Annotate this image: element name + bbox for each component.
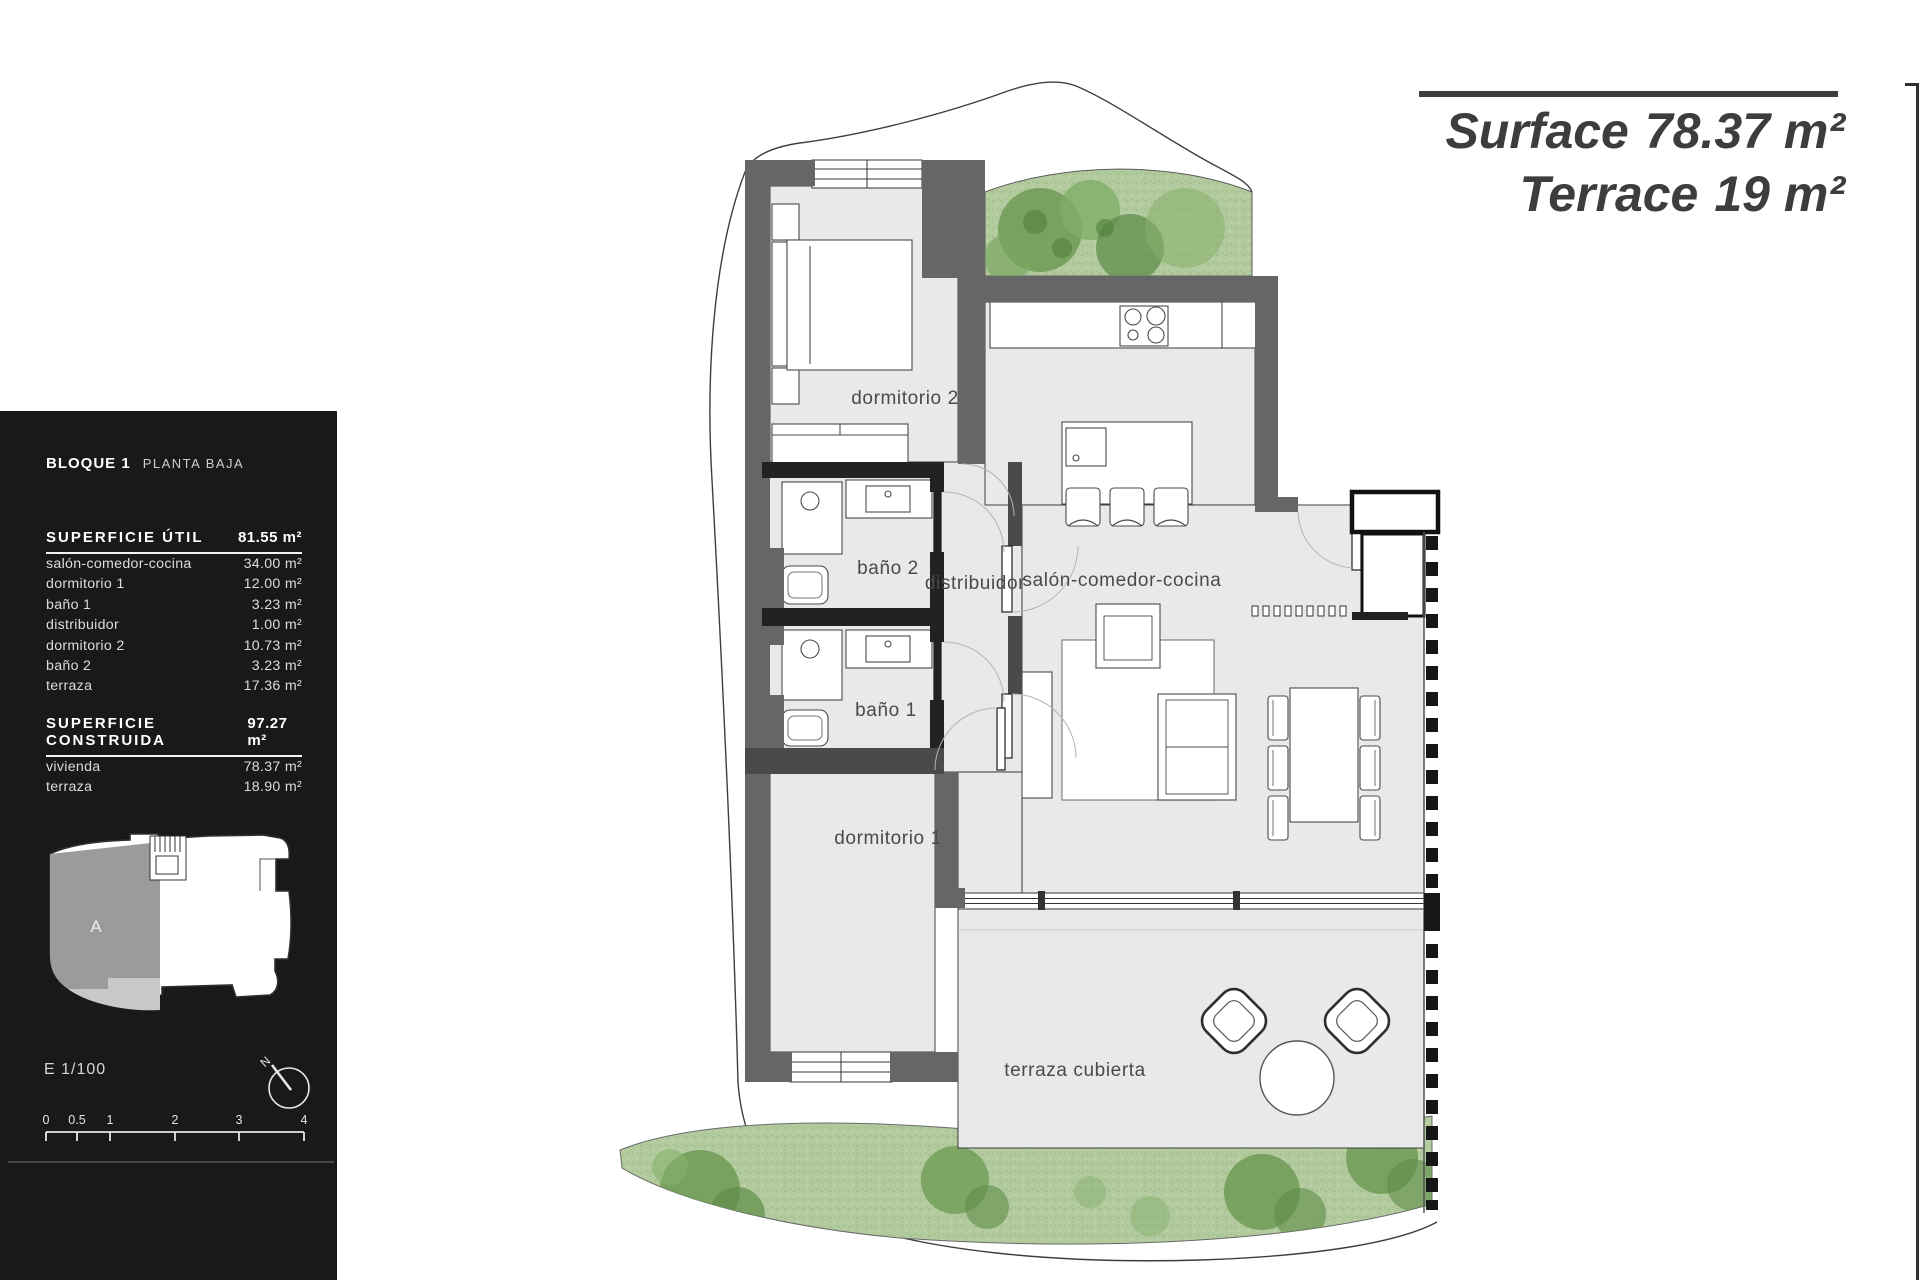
row-label: baño 2 (46, 656, 91, 676)
keyplan-label-a: A (90, 917, 102, 936)
wall-bottom-left (745, 1052, 792, 1082)
row-value: 10.73 m² (244, 636, 302, 656)
compass-north-label: N (257, 1054, 273, 1070)
floor-dormitorio-1 (770, 772, 935, 1052)
surface-label: Surface (1445, 103, 1628, 159)
surface-value: 78.37 m² (1645, 103, 1845, 159)
title-rule (1419, 91, 1838, 97)
superficie-construida-section: SUPERFICIE CONSTRUIDA 97.27 m² vivienda7… (46, 715, 302, 798)
constr-row: terraza18.90 m² (46, 777, 302, 797)
row-label: terraza (46, 777, 92, 797)
terrace-label: Terrace (1520, 166, 1699, 222)
wall-entry-foot (1255, 497, 1298, 512)
util-heading: SUPERFICIE ÚTIL (46, 529, 204, 546)
keyplan-stairs (150, 836, 186, 880)
terrace-line: Terrace19 m² (1445, 163, 1845, 226)
row-label: distribuidor (46, 615, 119, 635)
row-value: 3.23 m² (252, 595, 302, 615)
util-total: 81.55 m² (238, 529, 302, 546)
row-label: vivienda (46, 757, 100, 777)
label-bano-2: baño 2 (857, 558, 919, 579)
key-plan: A (38, 828, 300, 1018)
page-edge-line (1916, 83, 1919, 1280)
armchair (1096, 604, 1160, 668)
wall-bottom-right (890, 1052, 958, 1082)
util-row: baño 23.23 m² (46, 656, 302, 676)
floor-salon-sw (958, 772, 1022, 895)
scale-bar: 0 0.5 1 2 3 4 (38, 1110, 310, 1146)
glass-wall-salon (958, 891, 1424, 910)
constr-total: 97.27 m² (247, 715, 302, 749)
row-value: 17.36 m² (244, 676, 302, 696)
label-bano-1: baño 1 (855, 700, 917, 721)
block-title: BLOQUE 1PLANTA BAJA (46, 455, 244, 472)
row-label: baño 1 (46, 595, 91, 615)
util-row: dormitorio 210.73 m² (46, 636, 302, 656)
dining-table (1290, 688, 1358, 822)
wall-dorm1-step (935, 888, 965, 908)
wall-corner-ne (922, 160, 985, 278)
label-dormitorio-2: dormitorio 2 (851, 388, 959, 409)
util-row: dormitorio 112.00 m² (46, 574, 302, 594)
dining-set (1268, 688, 1380, 840)
util-row: distribuidor1.00 m² (46, 615, 302, 635)
row-value: 34.00 m² (244, 554, 302, 574)
wardrobe-dormitorio-2 (772, 424, 908, 464)
keyplan-block-a (50, 842, 160, 989)
row-label: salón-comedor-cocina (46, 554, 192, 574)
block-name: BLOQUE 1 (46, 455, 131, 472)
scalebar-label: 0 (43, 1113, 50, 1127)
tv-bench (1022, 672, 1052, 798)
sidebar-divider (8, 1161, 334, 1163)
garden-top (984, 169, 1252, 282)
label-dormitorio-1: dormitorio 1 (834, 828, 942, 849)
niche-base (1352, 612, 1408, 620)
scalebar-label: 2 (172, 1113, 179, 1127)
compass-icon: N (251, 1050, 319, 1118)
wall-kitchen-right (1255, 302, 1278, 505)
title-block: Surface78.37 m² Terrace19 m² (1445, 100, 1845, 226)
label-distribuidor: distribuidor (925, 573, 1025, 594)
wall-shower-nib-1 (745, 548, 784, 645)
wall-under-garden (985, 276, 1278, 302)
row-value: 12.00 m² (244, 574, 302, 594)
terrace-value: 19 m² (1714, 166, 1845, 222)
block-subtitle: PLANTA BAJA (143, 456, 245, 471)
entry-niche (1362, 534, 1424, 616)
constr-row: vivienda78.37 m² (46, 757, 302, 777)
window-dormitorio-1 (790, 1052, 892, 1082)
row-label: terraza (46, 676, 92, 696)
page-edge-tick (1905, 83, 1919, 86)
round-table (1260, 1041, 1334, 1115)
scalebar-label: 3 (236, 1113, 243, 1127)
row-value: 78.37 m² (244, 757, 302, 777)
label-terraza: terraza cubierta (1004, 1060, 1146, 1081)
label-salon: salón-comedor-cocina (1023, 570, 1222, 591)
constr-heading: SUPERFICIE CONSTRUIDA (46, 715, 247, 749)
window-dormitorio-2 (812, 160, 922, 188)
row-value: 18.90 m² (244, 777, 302, 797)
bar-stools (1066, 488, 1188, 526)
row-label: dormitorio 1 (46, 574, 125, 594)
floor-grille (1252, 606, 1346, 616)
row-value: 1.00 m² (252, 615, 302, 635)
superficie-util-section: SUPERFICIE ÚTIL 81.55 m² salón-comedor-c… (46, 529, 302, 697)
util-row: salón-comedor-cocina34.00 m² (46, 554, 302, 574)
scalebar-label: 4 (301, 1113, 308, 1127)
util-row: baño 13.23 m² (46, 595, 302, 615)
row-label: dormitorio 2 (46, 636, 125, 656)
row-value: 3.23 m² (252, 656, 302, 676)
wall-top (745, 160, 815, 186)
surface-line: Surface78.37 m² (1445, 100, 1845, 163)
wall-dorm2-kitchen (958, 276, 985, 464)
floorplan-sheet: { "title": { "surface_label": "Surface",… (0, 0, 1920, 1280)
louvre-hatch (1424, 536, 1440, 1210)
scale-text: E 1/100 (44, 1061, 106, 1079)
kitchen-counter (990, 302, 1268, 348)
entry-closet (1352, 492, 1438, 532)
scalebar-label: 0.5 (68, 1113, 85, 1127)
kitchen-island (1062, 422, 1192, 526)
scalebar-label: 1 (107, 1113, 114, 1127)
util-row: terraza17.36 m² (46, 676, 302, 696)
info-sidebar: BLOQUE 1PLANTA BAJA SUPERFICIE ÚTIL 81.5… (0, 411, 337, 1280)
